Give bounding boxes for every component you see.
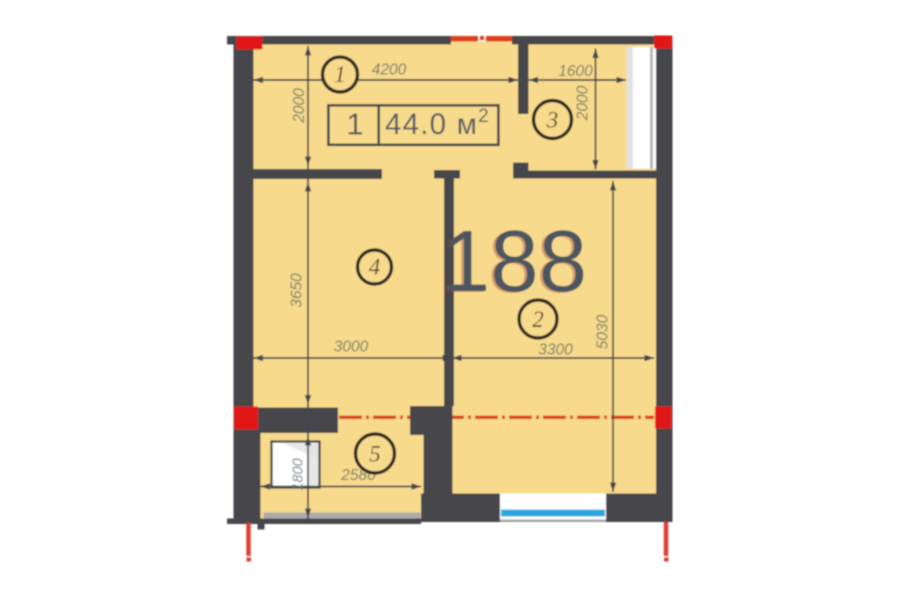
svg-text:5030: 5030 — [595, 314, 612, 349]
svg-text:5: 5 — [369, 442, 381, 467]
svg-text:3: 3 — [546, 108, 559, 133]
svg-text:4: 4 — [369, 255, 381, 280]
svg-text:1: 1 — [346, 107, 363, 142]
svg-text:3000: 3000 — [334, 339, 369, 356]
svg-text:3650: 3650 — [289, 273, 306, 308]
svg-text:1600: 1600 — [558, 63, 593, 80]
svg-text:44.0 м2: 44.0 м2 — [385, 106, 490, 141]
svg-text:4200: 4200 — [372, 62, 407, 79]
svg-text:3300: 3300 — [538, 342, 573, 359]
svg-text:2000: 2000 — [291, 88, 308, 124]
svg-text:1: 1 — [334, 62, 346, 87]
svg-text:1800: 1800 — [291, 458, 307, 490]
svg-text:188: 188 — [442, 213, 587, 310]
svg-text:2000: 2000 — [575, 85, 592, 121]
